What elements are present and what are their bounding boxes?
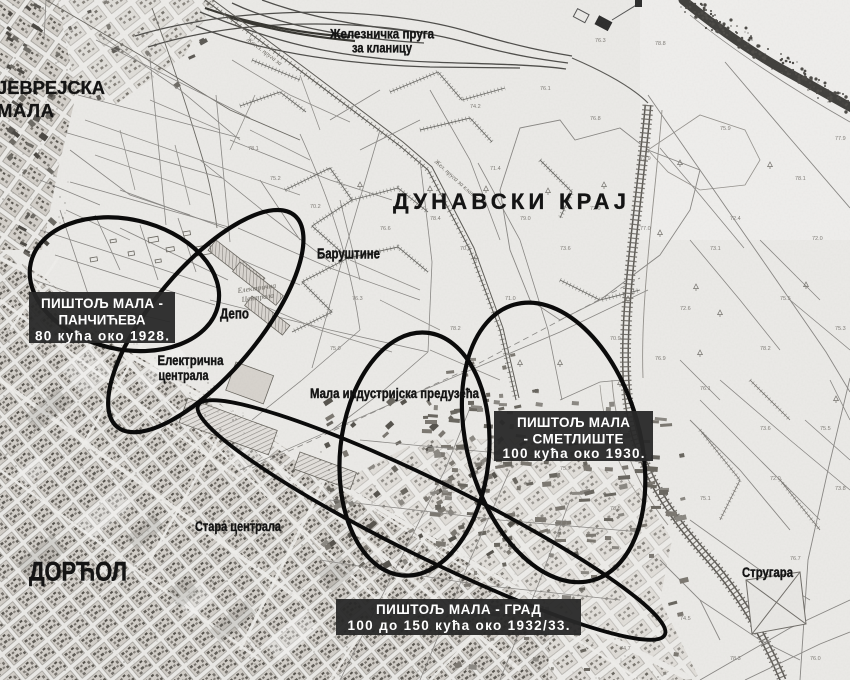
svg-text:ПИШТОЉ МАЛА - ГРАД: ПИШТОЉ МАЛА - ГРАД: [376, 602, 541, 617]
svg-text:Електрична: Електрична: [158, 353, 224, 368]
svg-text:Стругара: Стругара: [742, 564, 793, 580]
svg-text:Стара централа: Стара централа: [195, 518, 281, 534]
svg-text:ДОРЋОЛ: ДОРЋОЛ: [29, 557, 127, 587]
svg-text:80 кућа око 1928.: 80 кућа око 1928.: [35, 329, 169, 344]
svg-text:ПИШТОЉ МАЛА: ПИШТОЉ МАЛА: [517, 415, 630, 430]
svg-text:Баруштине: Баруштине: [317, 247, 380, 263]
svg-text:Железничка пруга: Железничка пруга: [329, 27, 434, 42]
svg-text:ПИШТОЉ МАЛА -: ПИШТОЉ МАЛА -: [41, 296, 163, 311]
svg-text:Мала индустријска предузећа: Мала индустријска предузећа: [310, 386, 479, 401]
svg-text:ПАНЧИЋЕВА: ПАНЧИЋЕВА: [59, 313, 146, 328]
svg-text:100 до 150 кућа око 1932/33.: 100 до 150 кућа око 1932/33.: [348, 618, 570, 633]
svg-text:МАЛА: МАЛА: [0, 100, 54, 121]
svg-text:за кланицу: за кланицу: [352, 41, 412, 56]
svg-text:100 кућа око 1930.: 100 кућа око 1930.: [503, 446, 645, 461]
svg-text:- СМЕТЛИШТЕ: - СМЕТЛИШТЕ: [524, 432, 624, 447]
svg-text:централа: централа: [159, 368, 209, 383]
svg-text:ЈЕВРЕЈСКА: ЈЕВРЕЈСКА: [0, 77, 105, 98]
svg-text:Депо: Депо: [220, 306, 249, 322]
